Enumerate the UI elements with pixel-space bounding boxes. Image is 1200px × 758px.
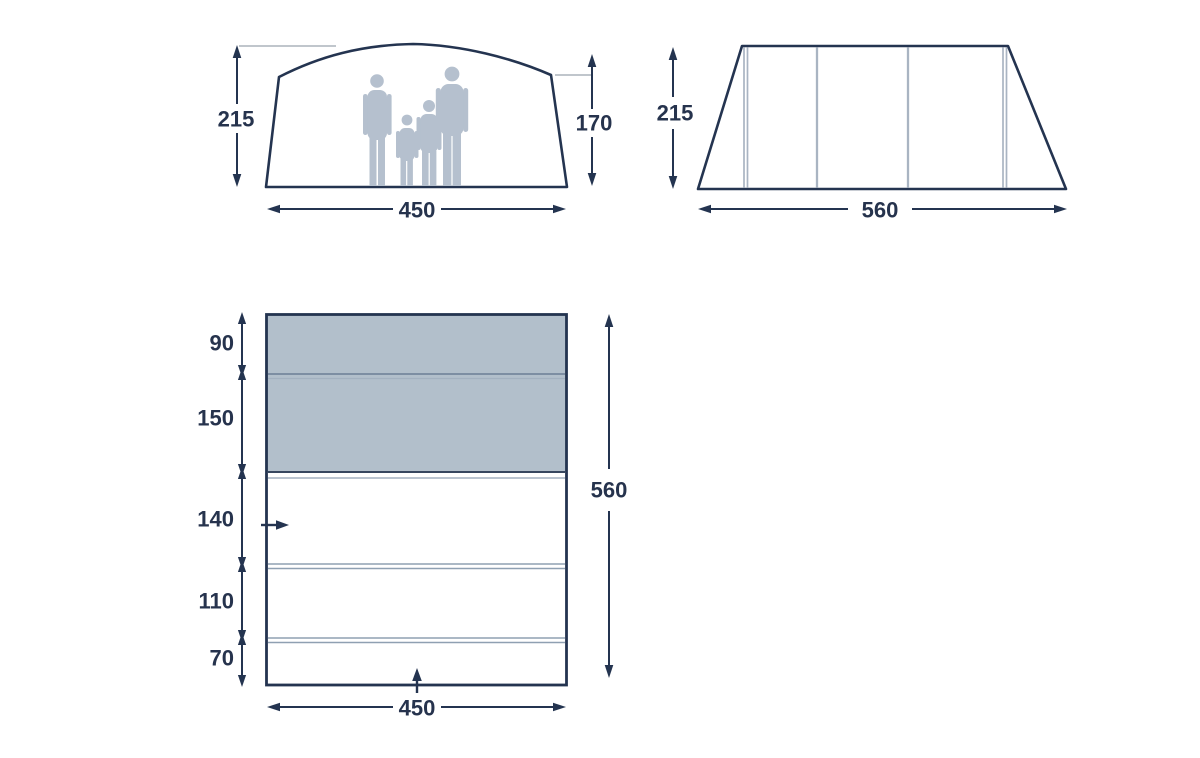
silhouette-torso [400,128,415,161]
silhouette-leg [422,151,429,186]
tent-dimension-diagram: 215 170 450 [0,0,1200,758]
arrowhead-right-icon [1054,205,1067,214]
silhouette-leg [407,159,413,186]
section-label-140: 140 [197,507,234,532]
silhouette-head [423,100,435,112]
arrowhead-up-icon [238,467,246,479]
front-view-tent-outline [266,44,567,187]
silhouette-torso [421,114,438,153]
silhouette-arm [436,88,441,132]
front-view: 215 170 450 [218,44,613,223]
silhouette-arm [396,131,400,158]
side-length-label: 560 [862,198,899,223]
arrowhead-down-icon [669,176,678,189]
arrowhead-down-icon [605,665,614,678]
silhouette-leg [453,132,461,186]
arrowhead-down-icon [233,174,242,187]
arrowhead-up-icon [238,633,246,645]
silhouette-arm [363,94,368,135]
section-label-110: 110 [199,589,235,614]
silhouette-arm [417,117,421,150]
section-label-70: 70 [210,646,234,671]
floor-plan-shaded-area [267,315,566,472]
floor-plan: 90 150 140 110 70 560 450 [197,312,627,721]
section-label-150: 150 [197,406,234,431]
floor-plan-width-label: 450 [399,696,436,721]
front-width-label: 450 [399,198,436,223]
arrowhead-left-icon [267,703,280,712]
silhouette-leg [401,159,407,186]
arrowhead-left-icon [267,205,280,214]
arrowhead-up-icon [669,47,678,60]
arrowhead-right-icon [276,520,289,530]
diagram-svg: 215 170 450 [0,0,1200,758]
arrowhead-down-icon [238,675,246,687]
silhouette-torso [441,84,464,136]
side-height-label: 215 [657,101,694,126]
floor-plan-section-dimensions [238,312,246,687]
section-label-90: 90 [210,331,234,356]
front-height-left-label: 215 [218,107,255,132]
arrowhead-up-icon [588,54,597,67]
silhouette-leg [430,151,437,186]
silhouette-leg [370,136,377,186]
arrowhead-right-icon [553,703,566,712]
silhouette-head [370,74,384,88]
arrowhead-up-icon [412,668,422,681]
side-view-tent-outline [698,46,1066,189]
silhouette-head [402,115,413,126]
silhouette-torso [368,90,388,140]
floor-plan-length-label: 560 [591,478,628,503]
silhouette-leg [443,132,451,186]
arrowhead-up-icon [605,314,614,327]
arrowhead-up-icon [233,45,242,58]
arrowhead-down-icon [588,173,597,186]
silhouette-head [445,67,460,82]
front-height-right-label: 170 [576,111,613,136]
side-view: 215 560 [657,46,1067,223]
arrowhead-left-icon [698,205,711,214]
arrowhead-up-icon [238,312,246,324]
silhouette-leg [378,136,385,186]
arrowhead-up-icon [238,560,246,572]
silhouette-arm [387,94,392,135]
front-entrance-arrow [412,668,422,693]
silhouette-arm [463,88,468,132]
arrowhead-right-icon [553,205,566,214]
arrowhead-up-icon [238,368,246,380]
